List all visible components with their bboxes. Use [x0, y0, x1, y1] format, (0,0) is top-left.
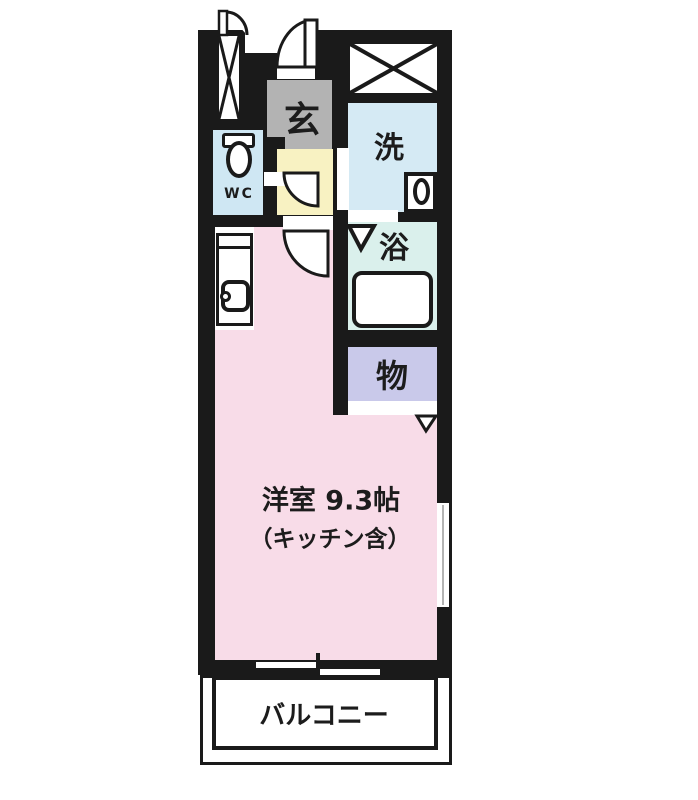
sliding-window-icon — [256, 662, 318, 668]
washing-machine-drum-icon — [413, 178, 430, 205]
laundry-label: 洗 — [374, 134, 404, 164]
bathtub-icon — [352, 271, 433, 328]
main-room-note: （キッチン含） — [250, 529, 411, 552]
balcony-label: バルコニー — [259, 703, 388, 729]
bath-label: 浴 — [379, 234, 409, 264]
room-hall — [277, 149, 333, 215]
floorplan: 玄 WC 洗 浴 物 洋室 9.3帖 （キッチン含） バルコニー — [0, 0, 698, 800]
kitchen-counter-divider — [218, 246, 251, 249]
main-room-label: 洋室 9.3帖 — [262, 488, 400, 515]
storage-label: 物 — [376, 360, 408, 392]
wc-doorway — [264, 172, 285, 186]
top-wall-right — [315, 30, 452, 44]
storage-opening — [348, 401, 437, 415]
laundry-doorway — [337, 148, 349, 210]
wc-label: WC — [224, 187, 254, 201]
top-wall-step — [245, 42, 277, 53]
hall-doorway — [283, 216, 333, 230]
bath-doorway — [348, 210, 398, 222]
genkan-label: 玄 — [284, 103, 320, 139]
entrance-threshold — [277, 66, 315, 79]
genkan-step-edge — [262, 137, 285, 149]
pipe-shaft-interior — [219, 36, 239, 119]
closet-box-interior — [350, 44, 437, 93]
entrance-opening — [277, 42, 315, 67]
kitchen-faucet-icon — [220, 291, 231, 302]
toilet-bowl-icon — [226, 141, 252, 178]
right-window — [437, 503, 449, 607]
